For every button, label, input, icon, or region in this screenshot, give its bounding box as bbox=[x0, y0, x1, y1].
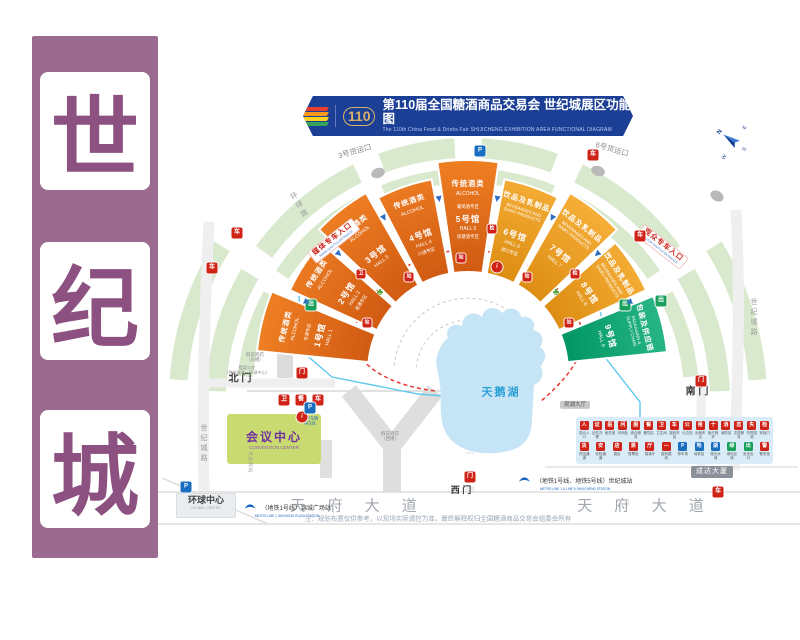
legend-证件办理-icon: 证 bbox=[593, 421, 602, 430]
intercontinental-label: 洲际酒店 bbox=[248, 451, 253, 473]
fair-number-badge: 110 bbox=[343, 107, 376, 126]
legend-酒店-icon: 店 bbox=[613, 442, 622, 451]
legend-item-label: 医疗救护 bbox=[707, 431, 720, 439]
svg-text:E: E bbox=[742, 124, 749, 131]
legend-item-label: 医务室 bbox=[603, 431, 616, 435]
svg-text:5号馆: 5号馆 bbox=[456, 214, 480, 224]
legend-item: 证证件办理 bbox=[591, 421, 603, 439]
global-center-label: 环球中心 GLOBAL CENTER bbox=[176, 493, 236, 518]
south-gate-label: 南 门 bbox=[686, 386, 709, 398]
page-title: 第110届全国糖酒商品交易会 世纪城展区功能图 bbox=[382, 99, 633, 127]
svg-text:保健酒专区: 保健酒专区 bbox=[457, 233, 480, 240]
page-subtitle: The 110th China Food & Drinks Fair SHIJI… bbox=[382, 127, 633, 133]
legend-item-label: 消防站 bbox=[720, 431, 733, 435]
legend-item-label: 接驳车站 bbox=[668, 431, 681, 439]
banner-char-cheng: 城 bbox=[40, 410, 150, 528]
convention-center-label: 会议中心 bbox=[246, 428, 302, 445]
legend-item-label: 警务室 bbox=[758, 452, 771, 456]
legend-安全出口-icon: 出 bbox=[744, 442, 753, 451]
legend-item: 医医务室 bbox=[604, 421, 616, 439]
legend-item: 消消防站 bbox=[720, 421, 732, 439]
staff-parking-label: 工作车辆停车区 bbox=[297, 416, 323, 425]
legend-绿化区域-icon: 绿 bbox=[727, 442, 736, 451]
metro-southeast-label: （地铁1号线、地铁5号线）世纪城站 METRO LINE 1 & LINE 5 … bbox=[517, 470, 632, 492]
legend-item-label: 绿化区域 bbox=[725, 452, 738, 460]
legend-item: 安安检通道 bbox=[594, 442, 606, 460]
legend-item: 车接驳车站 bbox=[668, 421, 680, 439]
banner-char-shi: 世 bbox=[40, 72, 150, 190]
metro-logo-icon bbox=[517, 476, 531, 483]
legend-item-label: 卫生间 bbox=[655, 431, 668, 435]
legend-item-label: 观演厅 bbox=[643, 452, 656, 456]
legend-停车场-icon: P bbox=[678, 442, 687, 451]
legend-item: 服综合服务 bbox=[630, 421, 642, 439]
legend-item: 人观众入口 bbox=[578, 421, 590, 439]
legend-item: 地地铁站 bbox=[693, 442, 705, 460]
convention-center-en-label: CONVENTION CENTER bbox=[249, 445, 299, 450]
legend-row-2: 货货运通道安安检通道店酒店票售票处厅观演厅⋯接驳路线P停车场地地铁站湖观光水域绿… bbox=[578, 442, 771, 460]
legend-item: P停车场 bbox=[676, 442, 688, 460]
legend-item: 公公交站 bbox=[681, 421, 693, 439]
svg-text:葡萄酒专区: 葡萄酒专区 bbox=[457, 203, 480, 210]
legend-警务室-icon: 警 bbox=[760, 442, 769, 451]
legend-地铁站-icon: 地 bbox=[695, 442, 704, 451]
west-gate-label: 西 门 bbox=[451, 485, 472, 495]
exhibition-map-poster: 传统酒类ALCOHOL名酒专区1号馆HALL 1传统酒类ALCOHOL2号馆HA… bbox=[0, 0, 800, 640]
legend-item-label: 综合服务 bbox=[629, 431, 642, 439]
legend-item: 餐餐饮区 bbox=[642, 421, 654, 439]
metro-logo-icon bbox=[243, 503, 257, 510]
legend-item-label: 酒店 bbox=[611, 452, 624, 456]
legend-接驳车站-icon: 车 bbox=[670, 421, 679, 430]
legend-item-label: 接驳路线 bbox=[660, 452, 673, 460]
legend-失物招领-icon: 失 bbox=[747, 421, 756, 430]
legend-观演厅-icon: 厅 bbox=[645, 442, 654, 451]
legend-item-label: 停车场 bbox=[676, 452, 689, 456]
legend-item-label: 售票处 bbox=[627, 452, 640, 456]
guanhu-hall-label: 观湖大厅 bbox=[560, 401, 590, 409]
legend-医务室-icon: 医 bbox=[605, 421, 614, 430]
legend-item: 绿绿化区域 bbox=[726, 442, 738, 460]
legend-医疗救护-icon: 十 bbox=[709, 421, 718, 430]
legend-安检口-icon: 检 bbox=[760, 421, 769, 430]
legend-item-label: 安检口 bbox=[758, 431, 771, 435]
legend-item: 出安全出口 bbox=[742, 442, 754, 460]
svg-text:W: W bbox=[721, 153, 729, 161]
legend-item: 检安检口 bbox=[758, 421, 770, 439]
shijicheng-road-left-label: 世纪城路 bbox=[199, 424, 207, 464]
legend-item: 问问询处 bbox=[617, 421, 629, 439]
compass-icon: N E S W bbox=[700, 112, 764, 172]
legend-item-label: 观光水域 bbox=[709, 452, 722, 460]
legend-志愿服务-icon: 志 bbox=[734, 421, 743, 430]
legend-观众入口-icon: 人 bbox=[580, 421, 589, 430]
legend-item: 票售票处 bbox=[627, 442, 639, 460]
legend-item-label: 志愿服务 bbox=[732, 431, 745, 439]
legend-item: 失失物招领 bbox=[746, 421, 758, 439]
legend-接驳路线-icon: ⋯ bbox=[662, 442, 671, 451]
legend-消防站-icon: 消 bbox=[721, 421, 730, 430]
svg-text:ALCOHOL: ALCOHOL bbox=[456, 191, 480, 197]
tianfu-avenue-right-label: 天 府 大 道 bbox=[577, 497, 713, 514]
legend-item: 店酒店 bbox=[611, 442, 623, 460]
legend-问询处-icon: 问 bbox=[618, 421, 627, 430]
legend-item: 湖观光水域 bbox=[709, 442, 721, 460]
legend-货运通道-icon: 货 bbox=[580, 442, 589, 451]
legend-item-label: 地铁站 bbox=[693, 452, 706, 456]
legend-item: ⋯接驳路线 bbox=[660, 442, 672, 460]
map-legend: 人观众入口证证件办理医医务室问问询处服综合服务餐餐饮区卫卫生间车接驳车站公公交站… bbox=[576, 417, 773, 464]
legend-item-label: 出租车点 bbox=[694, 431, 707, 439]
legend-item: 租出租车点 bbox=[694, 421, 706, 439]
shijicheng-road-right-label: 世纪城路 bbox=[749, 298, 757, 338]
legend-item-label: 失物招领 bbox=[745, 431, 758, 439]
legend-出租车点-icon: 租 bbox=[696, 421, 705, 430]
legend-公交站-icon: 公 bbox=[683, 421, 692, 430]
legend-row-1: 人观众入口证证件办理医医务室问问询处服综合服务餐餐饮区卫卫生间车接驳车站公公交站… bbox=[578, 421, 771, 439]
side-banner: 世 纪 城 bbox=[32, 36, 158, 558]
disclaimer-note: 注：规划布置仅供参考，以现场实际调控为准，最终解释权归全国糖酒商品交易会组委会所… bbox=[305, 515, 572, 522]
fair-logo-icon bbox=[303, 107, 328, 126]
svg-text:HALL 5: HALL 5 bbox=[460, 226, 477, 232]
legend-卫生间-icon: 卫 bbox=[657, 421, 666, 430]
legend-观光水域-icon: 湖 bbox=[711, 442, 720, 451]
swan-lake-label: 天鹅湖 bbox=[482, 387, 521, 400]
legend-item: 十医疗救护 bbox=[707, 421, 719, 439]
legend-item-label: 餐饮区 bbox=[642, 431, 655, 435]
legend-item-label: 证件办理 bbox=[591, 431, 604, 439]
chengda-building-label: 成达大厦 bbox=[691, 466, 733, 478]
svg-text:传统酒类: 传统酒类 bbox=[451, 179, 485, 188]
legend-售票处-icon: 票 bbox=[629, 442, 638, 451]
svg-text:N: N bbox=[716, 129, 723, 136]
legend-item-label: 观众入口 bbox=[578, 431, 591, 439]
legend-item-label: 问询处 bbox=[616, 431, 629, 435]
legend-item: 货货运通道 bbox=[578, 442, 590, 460]
title-banner: 110 第110届全国糖酒商品交易会 世纪城展区功能图 The 110th Ch… bbox=[303, 96, 633, 136]
holiday-inn-west-label: 假日酒店（西楼） bbox=[375, 431, 405, 441]
legend-item: 厅观演厅 bbox=[644, 442, 656, 460]
holiday-inn-east-label: 假日酒店（东楼） bbox=[240, 352, 270, 362]
legend-item: 志志愿服务 bbox=[733, 421, 745, 439]
svg-text:S: S bbox=[741, 146, 748, 153]
legend-item-label: 安检通道 bbox=[594, 452, 607, 460]
legend-item-label: 安全出口 bbox=[742, 452, 755, 460]
divider bbox=[335, 105, 336, 127]
legend-item-label: 公交站 bbox=[681, 431, 694, 435]
legend-item-label: 货运通道 bbox=[578, 452, 591, 460]
legend-安检通道-icon: 安 bbox=[596, 442, 605, 451]
legend-综合服务-icon: 服 bbox=[631, 421, 640, 430]
legend-餐饮区-icon: 餐 bbox=[644, 421, 653, 430]
swan-lake bbox=[436, 308, 545, 453]
shuttle-bus-note: 摆渡公交（世纪城北—环球中心） bbox=[218, 366, 276, 376]
legend-item: 警警务室 bbox=[758, 442, 770, 460]
banner-char-ji: 纪 bbox=[40, 242, 150, 360]
legend-item: 卫卫生间 bbox=[655, 421, 667, 439]
